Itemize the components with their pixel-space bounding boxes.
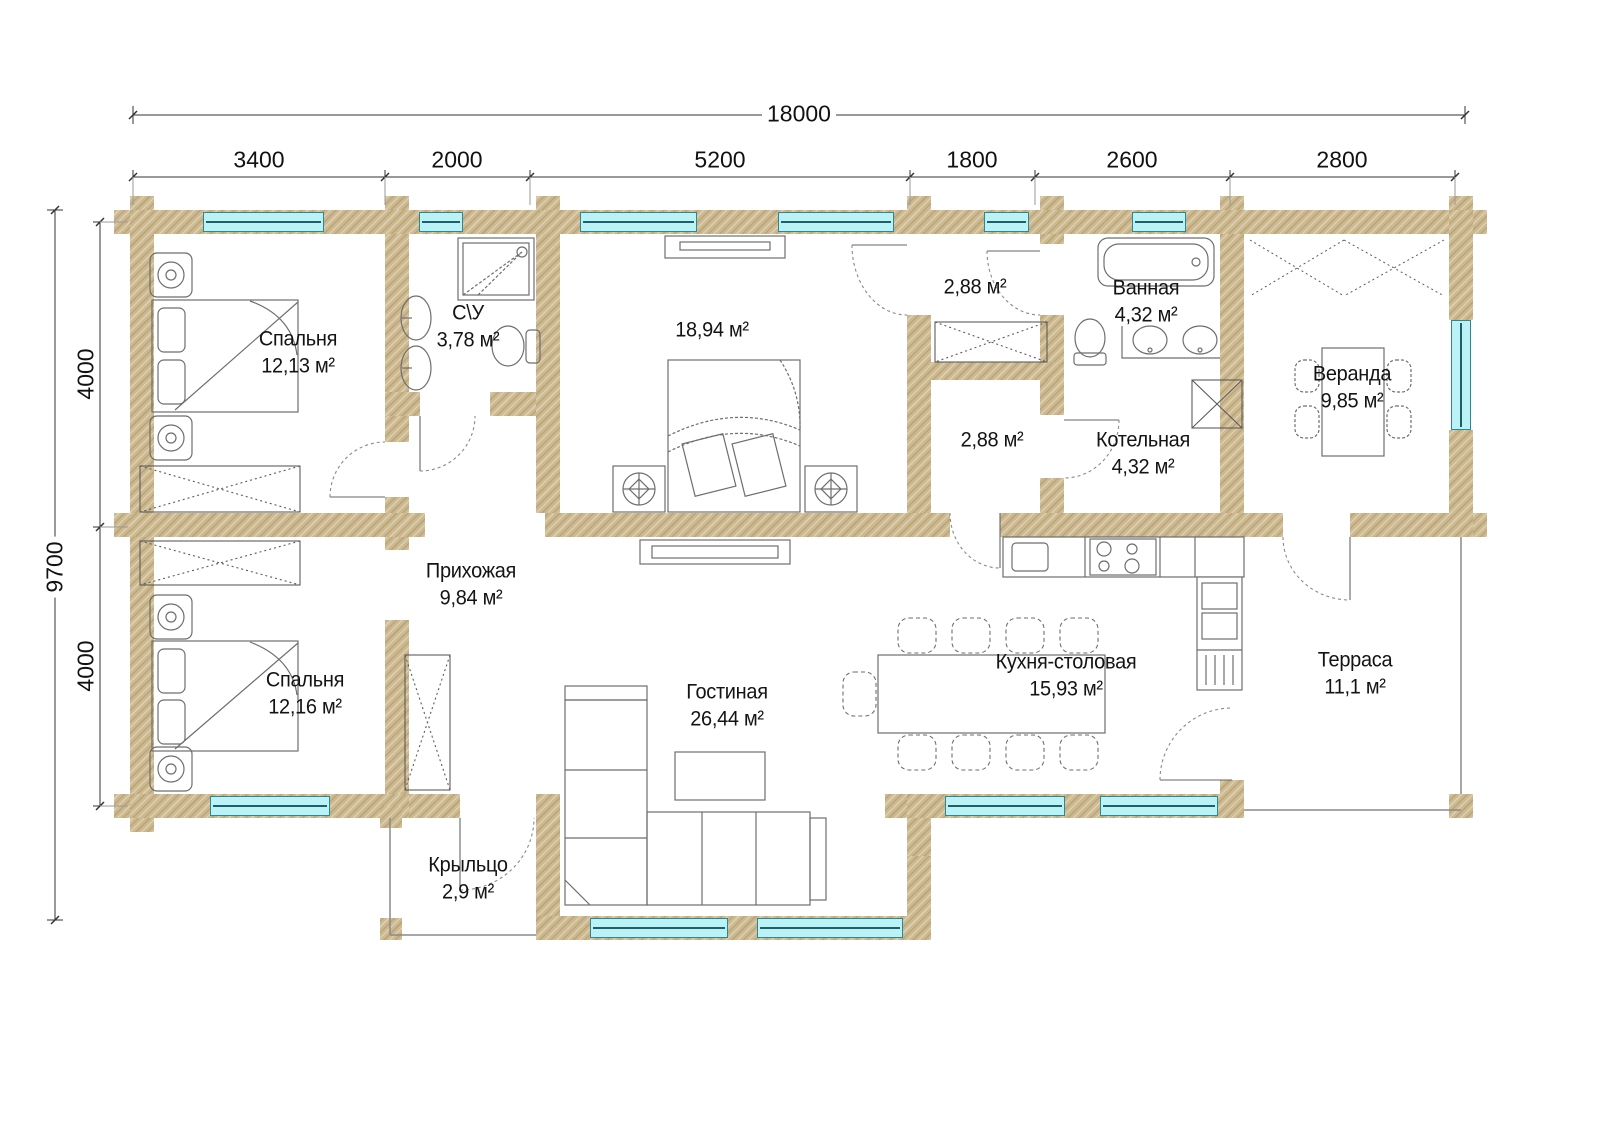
- sink: [401, 296, 431, 390]
- dimension-lines: [47, 106, 1469, 924]
- floor-plan: 18000 3400 2000 5200 1800 2600 2800 9700…: [0, 0, 1600, 1131]
- room-label-corridor-upper: 2,88 м²: [942, 273, 1008, 300]
- wardrobe: [140, 541, 300, 585]
- tv-cabinet: [665, 236, 785, 258]
- dim-segment: 2600: [1101, 147, 1162, 174]
- room-label-corridor-lower: 2,88 м²: [959, 426, 1025, 453]
- nightstand: [150, 253, 192, 460]
- wardrobe: [405, 655, 450, 790]
- dim-segment: 1800: [941, 147, 1002, 174]
- toilet: [1074, 319, 1106, 365]
- room-label-bedroom-2: Спальня12,16 м²: [264, 667, 346, 722]
- bed: [668, 360, 800, 512]
- room-label-porch: Крыльцо2,9 м²: [426, 852, 510, 907]
- room-label-wc: С\У3,78 м²: [435, 300, 501, 355]
- room-label-bedroom-3: 18,94 м²: [673, 316, 750, 343]
- room-label-hallway: Прихожая9,84 м²: [424, 558, 519, 613]
- dim-segment: 2800: [1311, 147, 1372, 174]
- room-label-terrace: Терраса11,1 м²: [1316, 647, 1394, 702]
- veranda-lattice: [1250, 240, 1444, 296]
- room-label-bedroom-1: Спальня12,13 м²: [257, 326, 339, 381]
- room-label-boiler-room: Котельная4,32 м²: [1094, 427, 1193, 482]
- wardrobe: [935, 322, 1047, 362]
- dim-segment: 5200: [689, 147, 750, 174]
- sink: [1122, 326, 1220, 358]
- coffee-table: [675, 752, 765, 800]
- dim-total-width: 18000: [762, 101, 836, 128]
- dim-segment: 4000: [73, 343, 100, 404]
- kitchen-counter: [1003, 537, 1244, 577]
- room-label-veranda: Веранда9,85 м²: [1311, 361, 1393, 416]
- dim-segment: 4000: [73, 635, 100, 696]
- dim-segment: 3400: [228, 147, 289, 174]
- shower-cabin: [458, 238, 534, 300]
- nightstand: [613, 466, 857, 512]
- room-label-kitchen-dining: Кухня-столовая15,93 м²: [992, 649, 1140, 704]
- tv-unit: [640, 540, 790, 564]
- dim-segment: 2000: [426, 147, 487, 174]
- fridge: [1197, 577, 1242, 690]
- dim-total-height: 9700: [42, 536, 69, 597]
- wardrobe: [140, 466, 300, 512]
- room-label-bathroom: Ванная4,32 м²: [1111, 275, 1181, 330]
- boiler-unit: [1192, 380, 1242, 428]
- room-label-living-room: Гостиная26,44 м²: [684, 679, 770, 734]
